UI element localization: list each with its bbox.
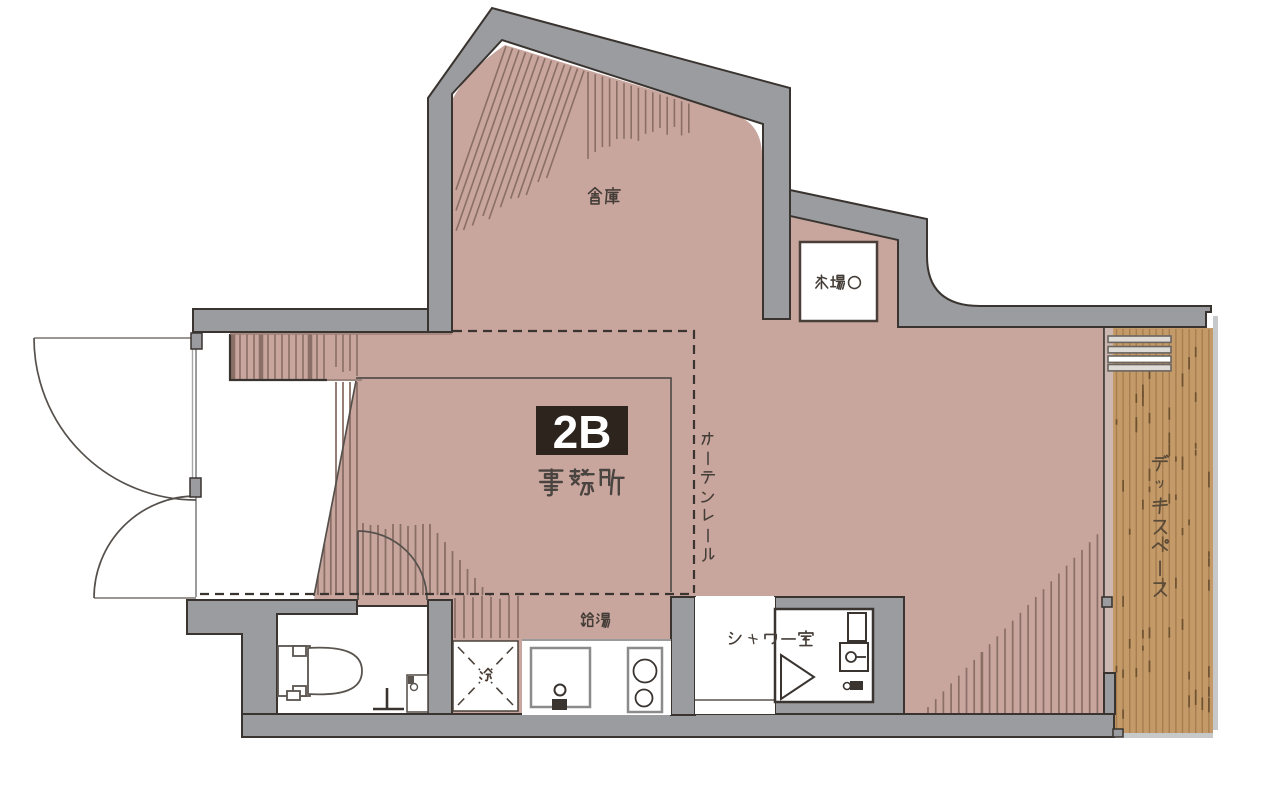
svg-text:2B: 2B bbox=[553, 406, 612, 458]
